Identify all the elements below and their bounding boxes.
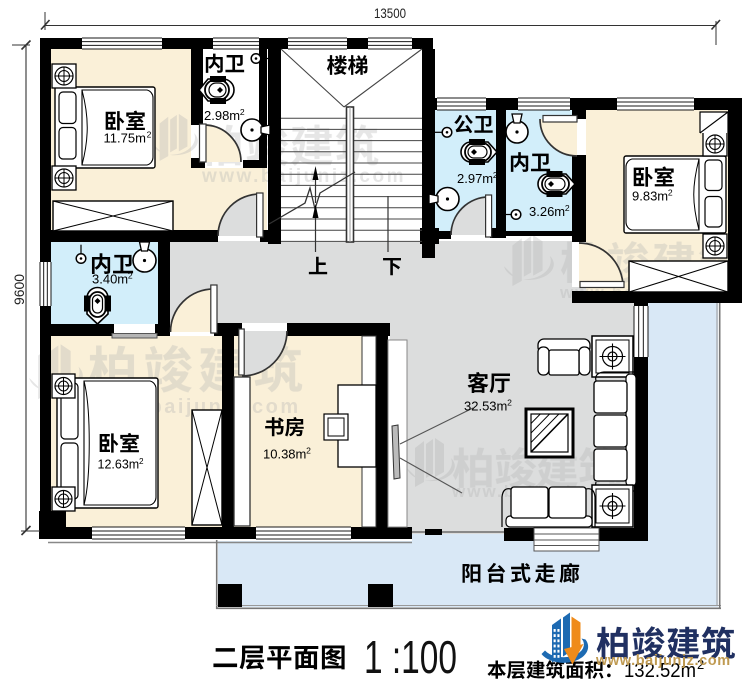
svg-text:9600: 9600 xyxy=(11,274,27,305)
svg-text:3.26m: 3.26m xyxy=(529,204,565,219)
svg-text:32.53m: 32.53m xyxy=(464,399,507,414)
svg-text:2: 2 xyxy=(493,170,498,180)
svg-text:2: 2 xyxy=(565,203,570,213)
svg-text:2.98m: 2.98m xyxy=(204,108,240,123)
svg-text:2.97m: 2.97m xyxy=(457,171,493,186)
svg-text:13500: 13500 xyxy=(374,5,406,21)
svg-text:11.75m: 11.75m xyxy=(104,131,146,146)
svg-text:2: 2 xyxy=(668,188,673,198)
svg-text:2: 2 xyxy=(507,398,512,408)
svg-text:12.63m: 12.63m xyxy=(98,458,140,472)
svg-text:2: 2 xyxy=(306,446,311,456)
svg-text:2: 2 xyxy=(240,107,245,117)
svg-text:2: 2 xyxy=(147,130,152,140)
svg-text:2: 2 xyxy=(128,271,133,281)
svg-text:www.baijunjz.com: www.baijunjz.com xyxy=(201,166,406,187)
svg-text:1 :100: 1 :100 xyxy=(364,631,457,683)
svg-text:2: 2 xyxy=(139,457,144,466)
svg-text:3.40m: 3.40m xyxy=(92,272,128,287)
svg-text:www.baijunjz.com: www.baijunjz.com xyxy=(595,653,731,669)
svg-text:10.38m: 10.38m xyxy=(263,447,306,462)
svg-text:9.83m: 9.83m xyxy=(632,189,668,204)
